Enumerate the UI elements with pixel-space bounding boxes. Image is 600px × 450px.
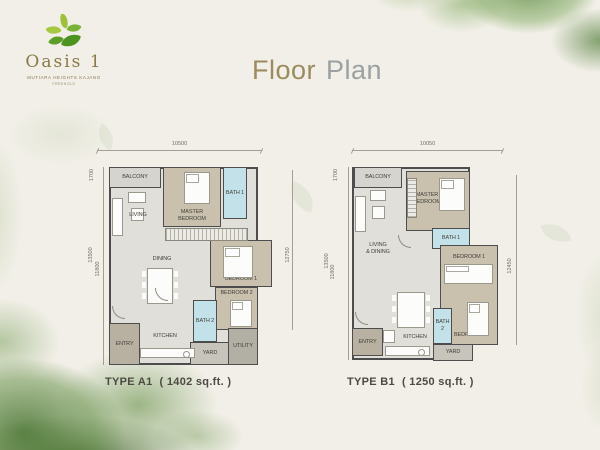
bed-icon bbox=[184, 172, 210, 204]
room-bath-1: BATH 1 bbox=[223, 167, 247, 219]
room-bedroom-2: BEDROOM 2 bbox=[215, 287, 258, 330]
room-yard: YARD bbox=[190, 342, 230, 365]
kitchen-counter-icon bbox=[385, 346, 430, 356]
dimension-line bbox=[348, 167, 349, 360]
dimension-label: 12450 bbox=[507, 253, 513, 279]
room-entry: ENTRY bbox=[352, 328, 383, 356]
dimension-line bbox=[97, 150, 262, 151]
bed-icon bbox=[467, 302, 489, 336]
dimension-label: 12750 bbox=[285, 242, 291, 268]
plan-a1-type: TYPE A1 bbox=[105, 376, 153, 388]
sofa-icon bbox=[355, 196, 366, 232]
dimension-label: 1700 bbox=[333, 162, 339, 188]
room-bath-2: BATH 2 bbox=[193, 300, 217, 342]
plan-a1-caption: TYPE A1( 1402 sq.ft. ) bbox=[105, 376, 231, 388]
room-bath-2: BATH 2 bbox=[433, 308, 452, 344]
plan-b1-caption: TYPE B1( 1250 sq.ft. ) bbox=[347, 376, 474, 388]
room-dining-label: DINING bbox=[142, 256, 182, 263]
title-word-plan: Plan bbox=[326, 55, 382, 85]
floor-plan-page: Oasis 1 MUTIARA HEIGHTS KAJANG FREEHOLD … bbox=[0, 0, 600, 450]
wardrobe-icon bbox=[165, 228, 248, 241]
room-balcony: BALCONY bbox=[354, 167, 402, 188]
room-master-bedroom: MASTER BEDROOM bbox=[163, 167, 221, 227]
dimension-line bbox=[292, 170, 293, 330]
dining-table-icon bbox=[397, 292, 425, 328]
dimension-label: 10050 bbox=[352, 141, 503, 147]
logo-leaves-icon bbox=[47, 14, 83, 52]
dimension-line bbox=[516, 175, 517, 345]
kitchen-counter-icon bbox=[140, 348, 195, 358]
dimension-label: 13500 bbox=[88, 242, 94, 268]
room-living-dining-label: LIVING & DINING bbox=[357, 242, 399, 256]
dimension-label: 10500 bbox=[97, 141, 262, 147]
room-utility: UTILITY bbox=[228, 328, 258, 365]
dimension-label: 11800 bbox=[95, 256, 101, 282]
room-bedroom-1: BEDROOM 1 bbox=[210, 240, 272, 287]
leaf-icon bbox=[66, 21, 81, 35]
plan-b1-type: TYPE B1 bbox=[347, 376, 395, 388]
room-yard: YARD bbox=[433, 344, 473, 361]
leaf-icon bbox=[61, 31, 81, 51]
floorplan-type-b1: 10050 1700 13500 11800 12450 BALCONY MAS… bbox=[340, 140, 550, 385]
page-title: FloorPlan bbox=[252, 55, 382, 86]
room-living-label: LIVING bbox=[118, 212, 158, 219]
logo-subtagline: FREEHOLD bbox=[14, 82, 114, 86]
coffee-table-icon bbox=[372, 206, 385, 219]
bed-icon bbox=[439, 178, 465, 211]
sofa-icon bbox=[370, 190, 386, 201]
title-word-floor: Floor bbox=[252, 55, 316, 85]
logo-name: Oasis 1 bbox=[14, 52, 114, 72]
floorplan-type-a1: 10500 1700 13500 11800 12750 BALCONY MAS… bbox=[95, 140, 305, 385]
sofa-icon bbox=[128, 192, 146, 203]
dimension-label: 1700 bbox=[89, 162, 95, 188]
room-entry: ENTRY bbox=[109, 323, 140, 365]
room-kitchen-label: KITCHEN bbox=[395, 334, 435, 341]
bed-icon bbox=[223, 246, 253, 278]
plan-b1-area: ( 1250 sq.ft. ) bbox=[402, 376, 474, 388]
staircase-icon bbox=[407, 178, 417, 218]
room-kitchen-label: KITCHEN bbox=[145, 333, 185, 340]
bed-icon bbox=[230, 300, 252, 327]
bed-icon bbox=[444, 264, 493, 284]
dimension-line bbox=[352, 150, 503, 151]
plan-a1-area: ( 1402 sq.ft. ) bbox=[160, 376, 232, 388]
dimension-label: 11800 bbox=[330, 259, 336, 285]
fridge-icon bbox=[383, 330, 395, 343]
room-balcony: BALCONY bbox=[109, 167, 161, 188]
dimension-line bbox=[103, 167, 104, 365]
logo-tagline: MUTIARA HEIGHTS KAJANG bbox=[14, 75, 114, 80]
